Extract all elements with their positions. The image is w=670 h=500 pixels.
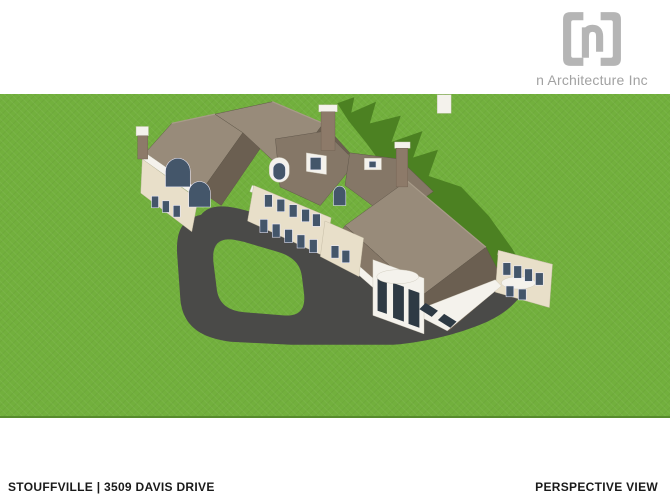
company-logo: n Architecture Inc <box>522 10 662 88</box>
rendering-area <box>0 94 670 418</box>
entry-balcony <box>377 270 419 284</box>
presentation-board: n Architecture Inc <box>0 0 670 500</box>
logo-letter-n <box>585 27 599 57</box>
arched-window <box>333 186 345 205</box>
white-chimney <box>437 95 451 114</box>
house-perspective-rendering <box>0 94 670 416</box>
chimney-cap <box>136 127 148 136</box>
logo-company-name: n Architecture Inc <box>522 72 662 88</box>
arched-bay-window <box>165 158 190 187</box>
chimney <box>396 148 408 187</box>
chimney-cap <box>395 142 410 148</box>
arched-bay-window <box>189 181 211 207</box>
chimney-cap <box>319 105 338 112</box>
project-location-label: STOUFFVILLE | 3509 DAVIS DRIVE <box>8 480 215 494</box>
n-brackets-logo-icon <box>559 10 625 68</box>
view-type-label: PERSPECTIVE VIEW <box>535 480 658 494</box>
chimney <box>138 136 148 159</box>
chimney <box>321 112 335 151</box>
logo-brackets <box>563 12 621 66</box>
